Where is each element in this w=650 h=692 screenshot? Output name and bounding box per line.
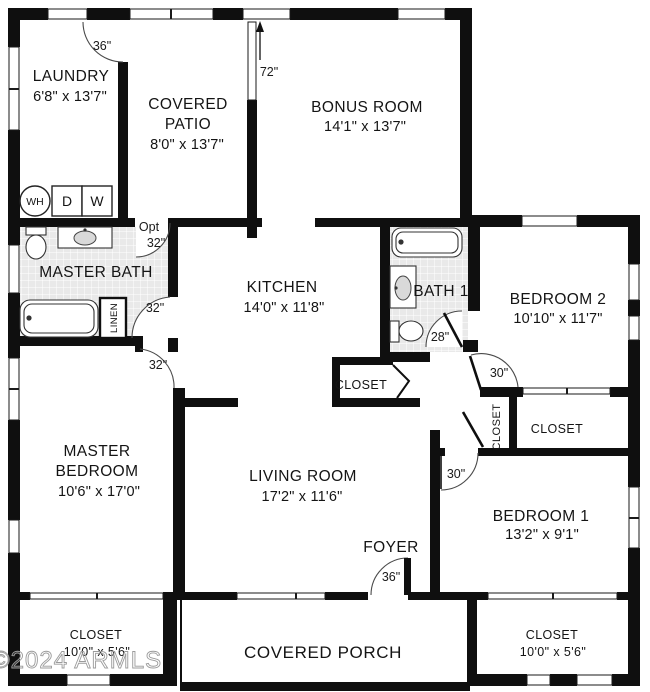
living-room-label: LIVING ROOM — [249, 468, 357, 485]
foyer-door-leaf — [404, 558, 411, 595]
slider-arrow-head — [256, 21, 264, 32]
bedroom1-door-size: 30" — [447, 467, 465, 481]
master-toilet-tank-icon — [26, 227, 46, 235]
dryer-label: D — [62, 193, 72, 209]
bath1-label: BATH 1 — [413, 283, 469, 300]
linen-label: LINEN — [109, 303, 120, 333]
laundry-label: LAUNDRY — [33, 68, 110, 85]
master-bedroom-door-size: 32" — [149, 358, 167, 372]
kitchen-label: KITCHEN — [247, 279, 318, 296]
master-bath-label: MASTER BATH — [39, 264, 152, 281]
kitchen-closet-label: CLOSET — [335, 378, 387, 392]
bath1-toilet-bowl-icon — [399, 321, 423, 341]
bedroom2-door-size: 30" — [490, 366, 508, 380]
bath1-tub-faucet-icon — [398, 239, 403, 244]
bedroom2-dims: 10'10" x 11'7" — [513, 311, 602, 327]
patio-label-1: COVERED — [148, 96, 227, 113]
master-tub-inner-icon — [24, 304, 94, 333]
master-bedroom-label-2: BEDROOM — [56, 463, 139, 480]
bath1-toilet-tank-icon — [390, 321, 399, 342]
master-bedroom-dims: 10'6" x 17'0" — [58, 484, 140, 500]
foyer-door-size: 36" — [382, 570, 400, 584]
covered-porch-label: COVERED PORCH — [244, 643, 402, 662]
bath1-tub-inner-icon — [396, 232, 458, 253]
bonus-room-label: BONUS ROOM — [311, 99, 423, 116]
kitchen-closet-bifold-door — [393, 365, 409, 398]
bedroom2-label: BEDROOM 2 — [510, 291, 607, 308]
labels: LAUNDRY 6'8" x 13'7" COVERED PATIO 8'0" … — [26, 39, 606, 662]
patio-slider-size: 72" — [260, 65, 278, 79]
floor-plan: LAUNDRY 6'8" x 13'7" COVERED PATIO 8'0" … — [0, 0, 650, 692]
bedroom2-door-leaf — [470, 356, 481, 390]
master-tub-faucet-icon — [26, 315, 31, 320]
bonus-room-dims: 14'1" x 13'7" — [324, 119, 406, 135]
water-heater-label: WH — [26, 196, 44, 208]
hall-closet-label: CLOSET — [491, 403, 503, 450]
bedroom1-dims: 13'2" x 9'1" — [505, 527, 579, 543]
laundry-door-size: 36" — [93, 39, 111, 53]
master-bedroom-label-1: MASTER — [64, 443, 131, 460]
foyer-label: FOYER — [363, 539, 418, 556]
living-room-dims: 17'2" x 11'6" — [261, 489, 342, 505]
kitchen-dims: 14'0" x 11'8" — [243, 300, 324, 316]
master-closet-label: CLOSET — [70, 628, 122, 642]
master-sink-icon — [74, 231, 96, 245]
opt-door-size: 32" — [147, 236, 165, 250]
hall-closet-door-leaf — [463, 412, 483, 447]
bedroom1-closet-label: CLOSET — [526, 628, 578, 642]
master-bath-door-size: 32" — [146, 301, 164, 315]
opt-door-label: Opt — [139, 220, 160, 234]
patio-label-2: PATIO — [165, 116, 211, 133]
washer-label: W — [90, 193, 104, 209]
laundry-dims: 6'8" x 13'7" — [33, 89, 107, 105]
patio-dims: 8'0" x 13'7" — [150, 137, 224, 153]
bedroom2-closet-label: CLOSET — [531, 422, 583, 436]
bath1-door-size: 28" — [431, 330, 449, 344]
watermark: ©2024 ARMLS — [0, 647, 162, 674]
bath1-sink-faucet-icon — [394, 286, 397, 289]
bedroom1-label: BEDROOM 1 — [493, 508, 590, 525]
bedroom1-closet-dims: 10'0" x 5'6" — [520, 645, 586, 659]
floor-plan-drawing: LAUNDRY 6'8" x 13'7" COVERED PATIO 8'0" … — [0, 0, 650, 692]
master-sink-faucet-icon — [83, 228, 86, 231]
master-toilet-bowl-icon — [26, 235, 46, 259]
